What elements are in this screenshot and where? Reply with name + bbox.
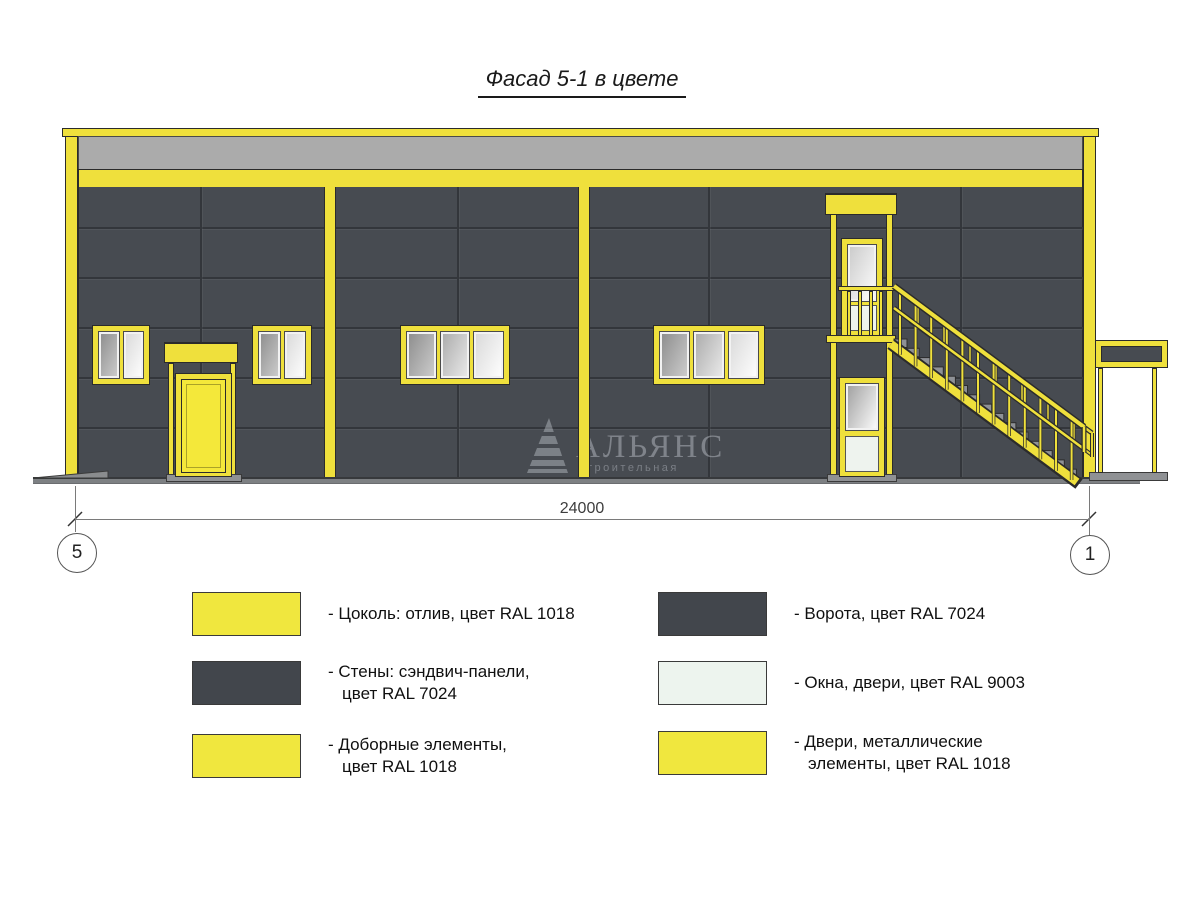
- legend-text: - Ворота, цвет RAL 7024: [794, 603, 985, 625]
- legend-swatch-dark: [658, 592, 767, 636]
- axis-bubble-1: 1: [1070, 535, 1110, 575]
- dimension-value: 24000: [75, 500, 1089, 518]
- rear-exit-door: [839, 377, 885, 477]
- window-3pane: [653, 325, 765, 385]
- stair-platform: [826, 335, 896, 343]
- upper-door-canopy: [825, 193, 897, 215]
- facade-divider-strip: [578, 187, 590, 478]
- legend-swatch-light: [658, 661, 767, 705]
- facade-drawing-sheet: Фасад 5-1 в цвете АЛЬЯНС строительная ко…: [0, 0, 1200, 900]
- legend-item-trim-elements: - Доборные элементы, цвет RAL 1018: [192, 734, 507, 778]
- stair-post: [830, 214, 837, 478]
- balcony-baluster: [858, 291, 862, 336]
- window-3pane: [400, 325, 510, 385]
- axis-label: 5: [72, 542, 83, 564]
- legend-text: цвет RAL 1018: [328, 756, 507, 778]
- entrance-canopy: [164, 342, 238, 363]
- legend-item-walls: - Стены: сэндвич-панели, цвет RAL 7024: [192, 661, 530, 705]
- legend-text: - Двери, металлические: [794, 731, 1011, 753]
- window-pane: [284, 331, 307, 379]
- balcony-baluster: [847, 291, 851, 336]
- rear-door-window: [845, 383, 879, 431]
- legend-text: - Доборные элементы,: [328, 734, 507, 756]
- axis-label: 1: [1085, 544, 1096, 566]
- side-canopy: [1095, 340, 1168, 368]
- balcony-baluster: [879, 291, 883, 336]
- door-leaf: [181, 379, 226, 473]
- side-canopy-panel: [1101, 346, 1162, 362]
- window-2pane: [252, 325, 312, 385]
- corner-trim-left: [65, 136, 78, 478]
- corner-trim-right: [1083, 136, 1096, 478]
- door-panel-line: [186, 384, 221, 468]
- window-pane: [440, 331, 471, 379]
- window-pane: [123, 331, 145, 379]
- legend-text: - Стены: сэндвич-панели,: [328, 661, 530, 683]
- facade-divider-strip: [324, 187, 336, 478]
- legend-text: элементы, цвет RAL 1018: [794, 753, 1011, 775]
- legend-item-windows-doors: - Окна, двери, цвет RAL 9003: [658, 661, 1025, 705]
- legend-swatch-dark: [192, 661, 301, 705]
- legend-item-gates: - Ворота, цвет RAL 7024: [658, 592, 985, 636]
- balcony-top-rail: [838, 286, 895, 291]
- window-pane: [473, 331, 504, 379]
- axis-bubble-5: 5: [57, 533, 97, 573]
- side-canopy-post: [1152, 368, 1157, 473]
- entrance-door: [175, 373, 232, 477]
- legend-swatch-yellow: [192, 734, 301, 778]
- legend-swatch-yellow: [658, 731, 767, 775]
- legend-swatch-yellow: [192, 592, 301, 636]
- canopy-post: [168, 363, 174, 478]
- drawing-title: Фасад 5-1 в цвете: [382, 66, 782, 98]
- canopy-base-pad: [1089, 472, 1168, 481]
- window-pane: [98, 331, 120, 379]
- extension-line-right: [1089, 486, 1090, 535]
- dimension-line: [75, 519, 1089, 520]
- legend-item-plinth: - Цоколь: отлив, цвет RAL 1018: [192, 592, 575, 636]
- legend-text: - Цоколь: отлив, цвет RAL 1018: [328, 603, 575, 625]
- stair-post: [886, 214, 893, 478]
- legend-text: - Окна, двери, цвет RAL 9003: [794, 672, 1025, 694]
- panel-joint-v: [960, 187, 962, 478]
- side-canopy-post: [1098, 368, 1103, 473]
- window-pane: [406, 331, 437, 379]
- drawing-title-text: Фасад 5-1 в цвете: [478, 66, 687, 98]
- window-pane: [659, 331, 690, 379]
- window-2pane: [92, 325, 150, 385]
- upper-yellow-band: [78, 169, 1083, 188]
- balcony-baluster: [869, 291, 873, 336]
- legend-text: цвет RAL 7024: [328, 683, 530, 705]
- rear-door-panel: [845, 436, 879, 472]
- legend-item-metal-doors: - Двери, металлические элементы, цвет RA…: [658, 731, 1011, 775]
- window-pane: [258, 331, 281, 379]
- window-pane: [693, 331, 724, 379]
- window-pane: [728, 331, 759, 379]
- parapet-band: [78, 136, 1083, 170]
